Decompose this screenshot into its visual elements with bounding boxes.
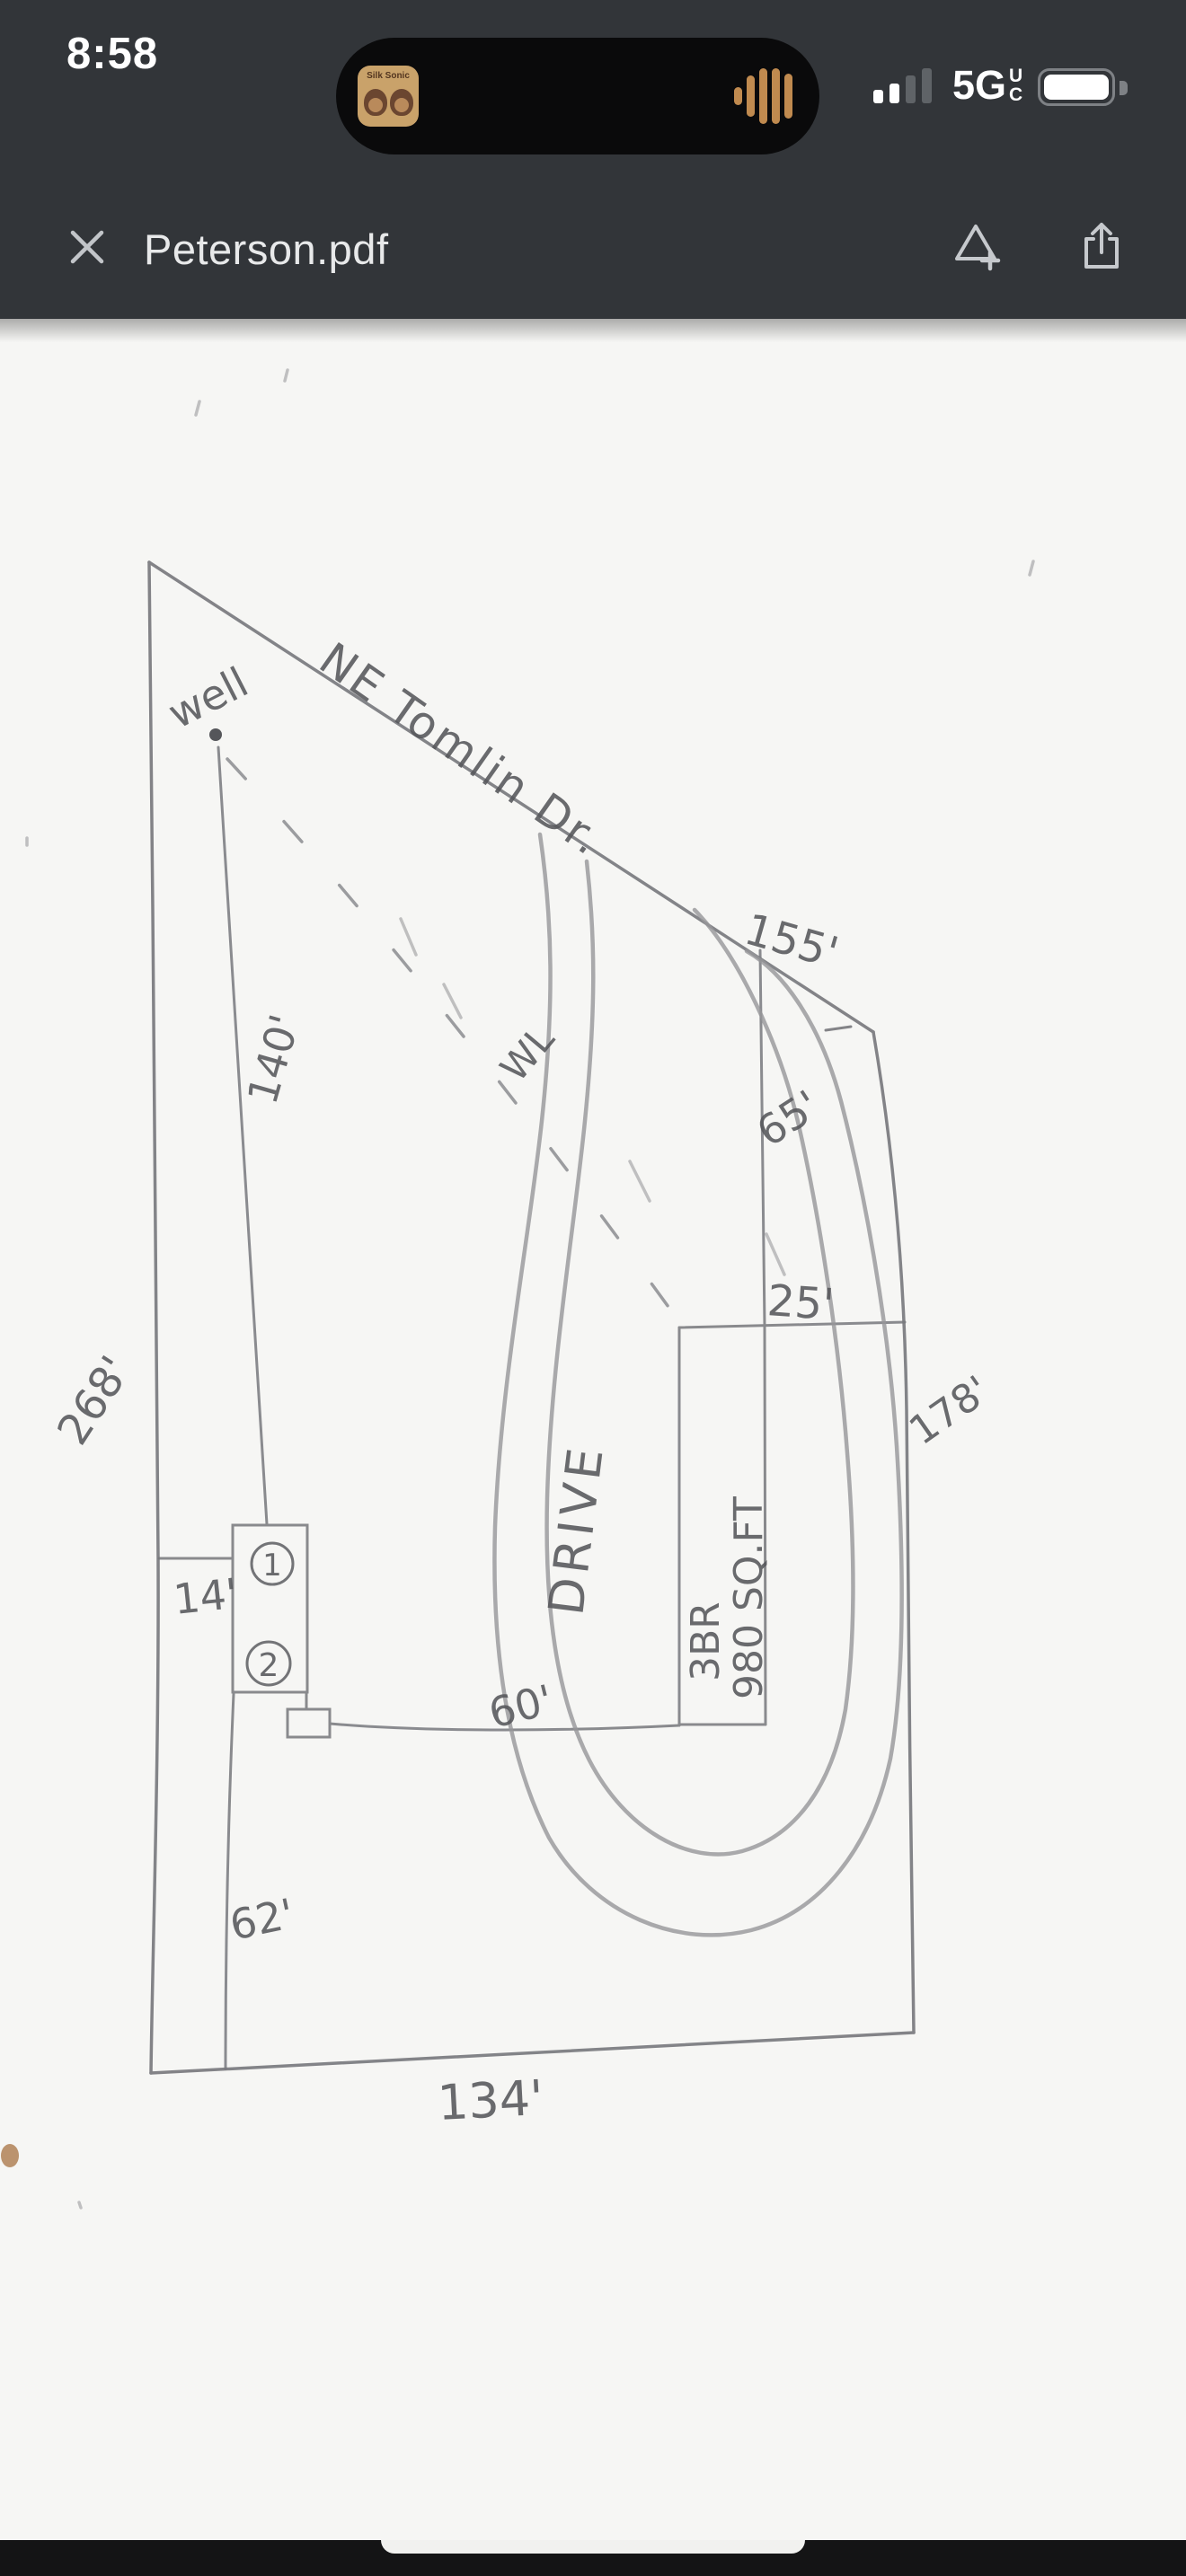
document-title: Peterson.pdf [144, 225, 389, 274]
close-button[interactable] [66, 226, 108, 268]
dynamic-island[interactable]: Silk Sonic [336, 38, 819, 154]
pdf-page[interactable]: 1 2 NE Tomlin Dr. well 155' 65' 25' 178'… [0, 319, 1186, 2540]
dim-140-label: 140' [238, 1010, 310, 1109]
boundary-south-line [151, 2033, 914, 2073]
share-icon [1075, 219, 1128, 273]
share-button[interactable] [1075, 219, 1128, 273]
driveway-inner-edge [547, 861, 854, 1854]
network-type-label: 5G [952, 66, 1006, 104]
network-badge-bottom: C [1009, 85, 1022, 104]
water-line-label: WL [491, 1017, 563, 1090]
dim-14-label: 14' [172, 1569, 240, 1624]
site-plan-drawing: 1 2 NE Tomlin Dr. well 155' 65' 25' 178'… [0, 319, 1186, 2540]
boundary-east-line [873, 1032, 914, 2033]
status-time: 8:58 [66, 29, 158, 79]
next-page-edge [381, 2540, 805, 2554]
close-icon [66, 226, 108, 268]
house-3br-label: 3BR [683, 1601, 729, 1681]
dim-65-label: 65' [748, 1081, 828, 1156]
dim-268-label: 268' [48, 1347, 141, 1453]
unit-2-label: 2 [259, 1647, 279, 1684]
battery-nub [1120, 81, 1128, 95]
house-sqft-label: 980 SQ.FT [726, 1496, 772, 1699]
header: 8:58 Silk Sonic 5G U C [0, 0, 1186, 319]
toolbar-shadow [0, 319, 1186, 342]
iphone-screen: 8:58 Silk Sonic 5G U C [0, 0, 1186, 2576]
audio-waveform-icon [734, 38, 792, 154]
dim-62ft-line [226, 1694, 234, 2069]
boundary-west-line [149, 562, 158, 2073]
battery-icon [1038, 68, 1115, 106]
album-face-left [364, 89, 387, 116]
well-label: well [160, 657, 255, 738]
dim-155-label: 155' [739, 904, 844, 979]
album-title: Silk Sonic [358, 71, 419, 81]
network-type: 5G U C [952, 66, 1022, 104]
album-face-right [390, 89, 413, 116]
dim-178-label: 178' [901, 1367, 998, 1454]
network-badge-top: U [1009, 66, 1022, 85]
dim-25-label: 25' [766, 1275, 836, 1330]
stray-pencil-marks [27, 370, 1033, 2208]
scan-smudge [1, 2144, 19, 2167]
cellular-signal-icon [873, 67, 938, 103]
road-tick-mark [826, 1027, 851, 1030]
well-to-house-line [218, 747, 267, 1524]
driveway [494, 834, 901, 1935]
road-name-label: NE Tomlin Dr. [310, 632, 613, 866]
add-to-drive-icon [949, 219, 1003, 273]
album-art: Silk Sonic [358, 66, 419, 127]
add-to-drive-button[interactable] [949, 219, 1003, 273]
dim-62-label: 62' [226, 1889, 298, 1950]
unit-1-label: 1 [262, 1548, 282, 1584]
well-dot [209, 728, 222, 741]
dim-134-label: 134' [436, 2069, 544, 2131]
pump-house-outline [288, 1709, 330, 1737]
